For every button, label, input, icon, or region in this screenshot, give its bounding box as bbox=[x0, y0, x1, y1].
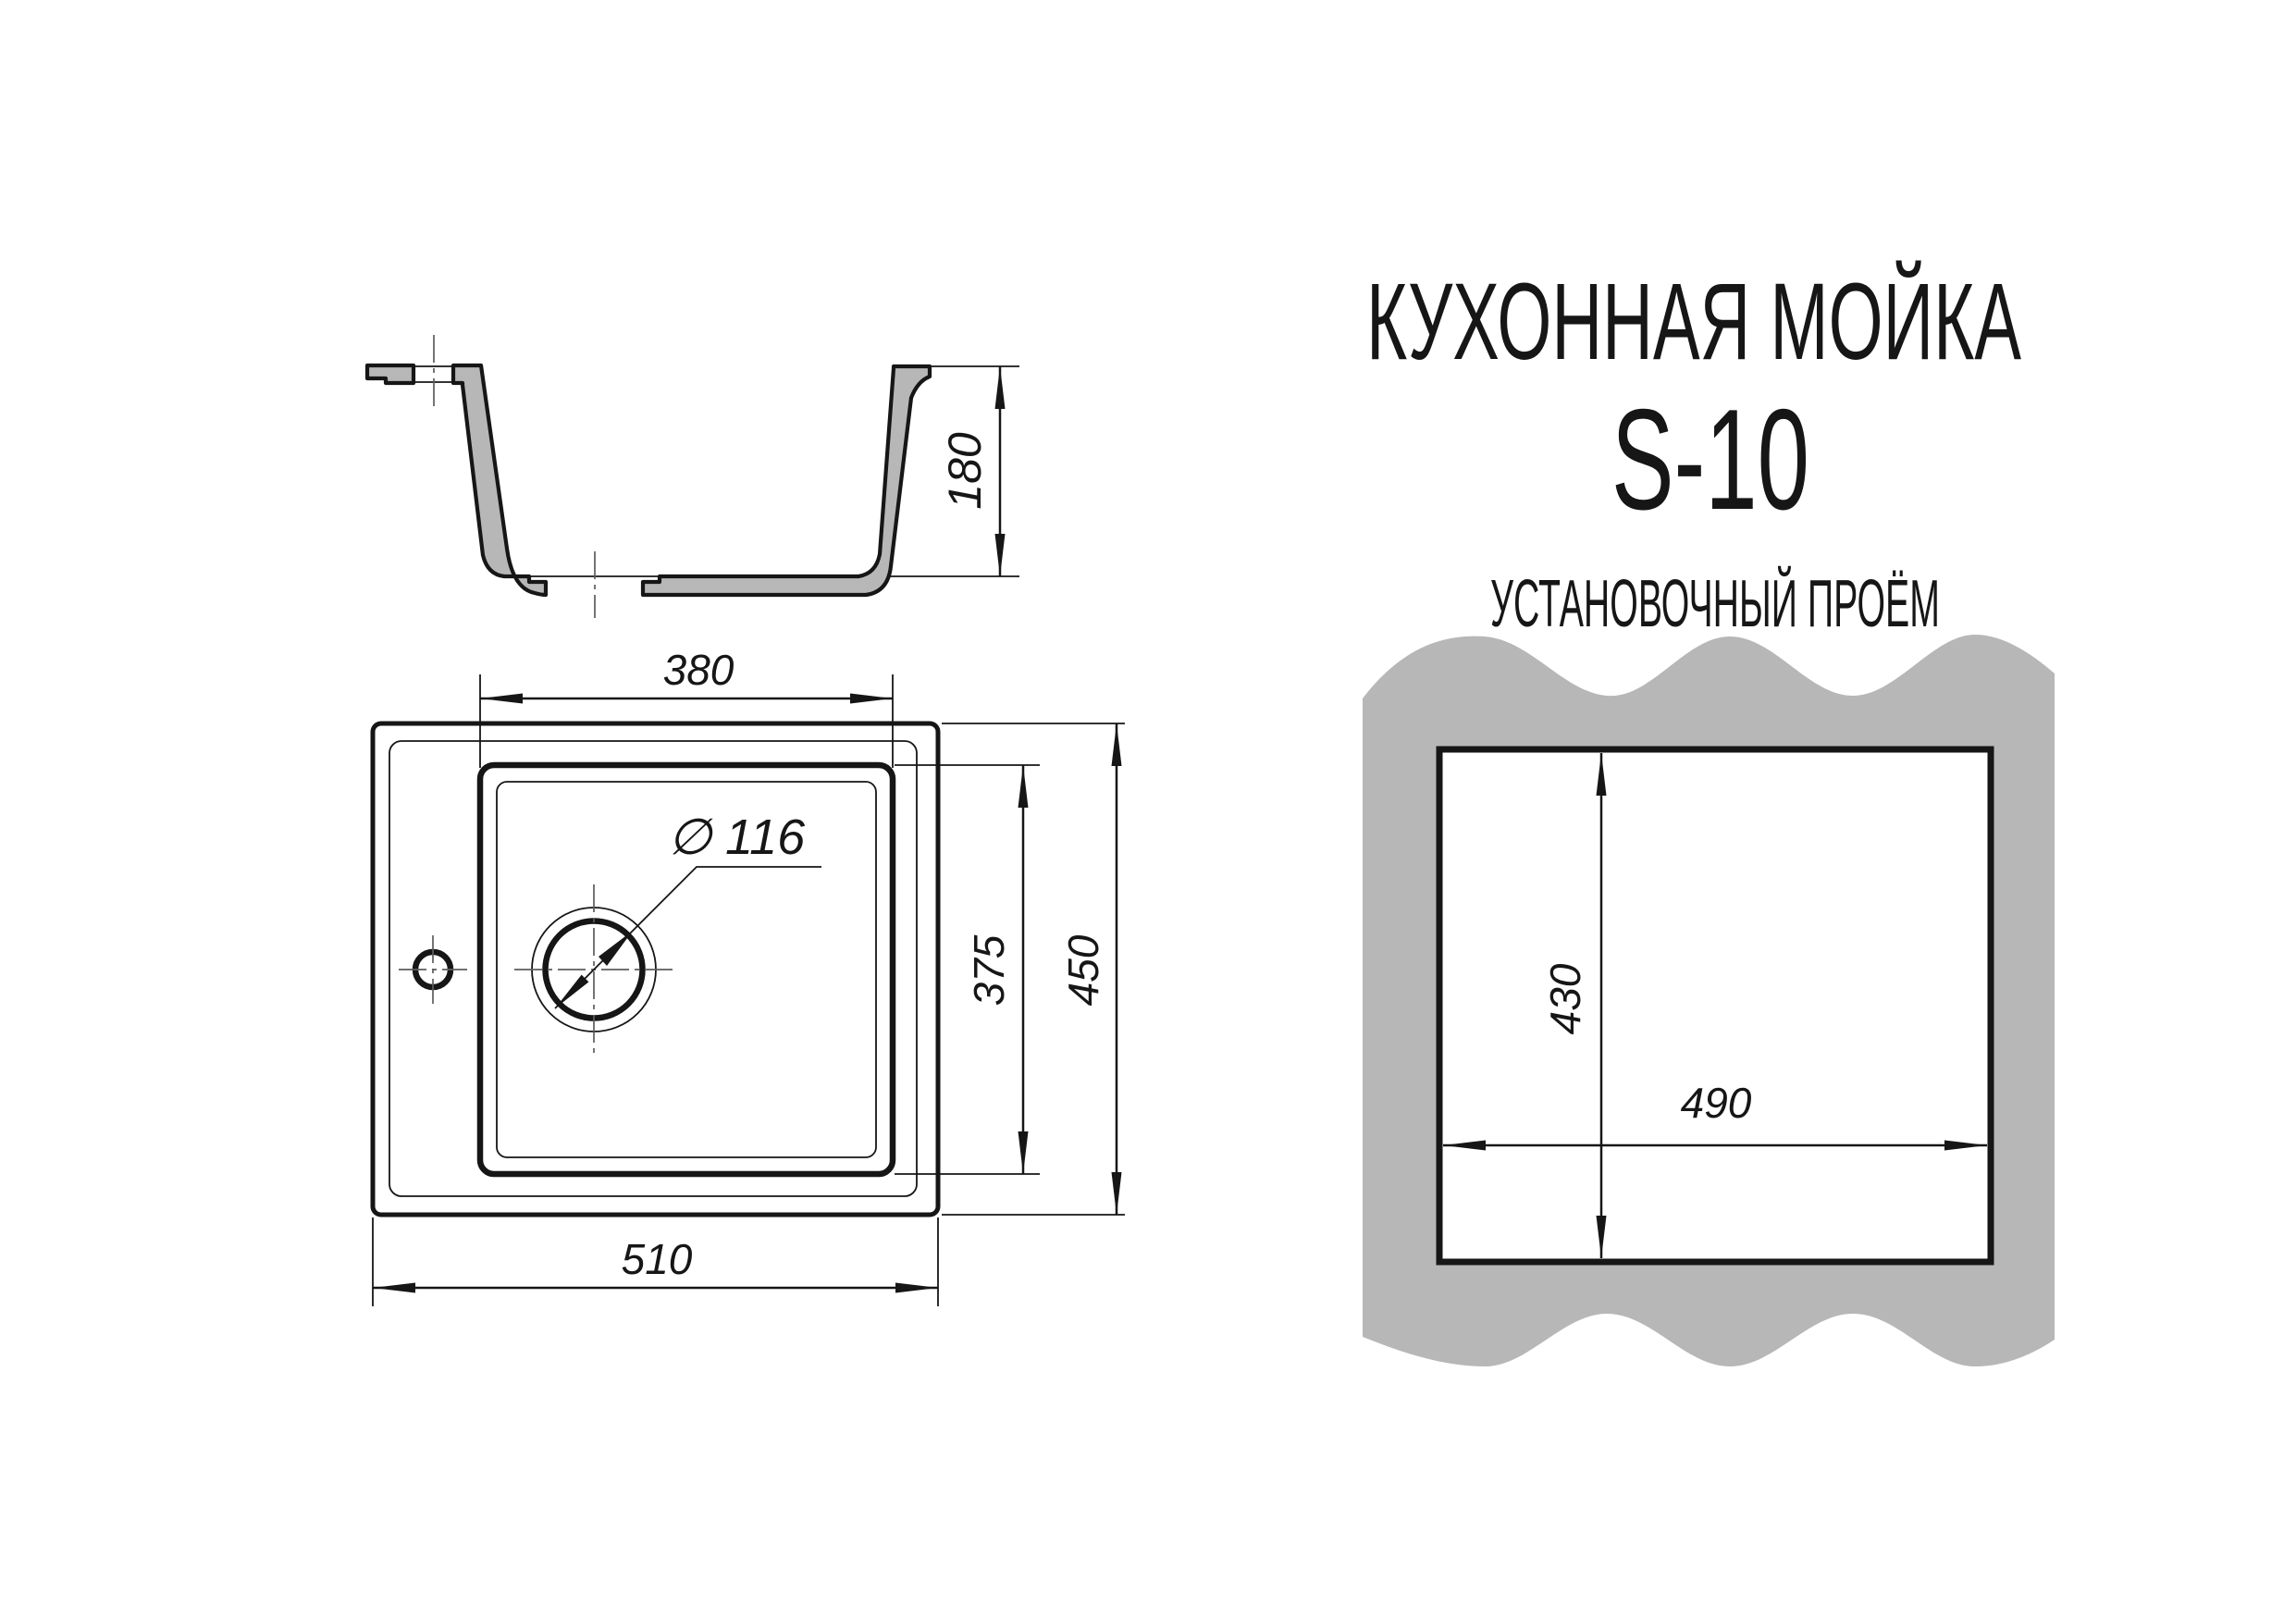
model-title: S-10 bbox=[1611, 379, 1809, 539]
drawing-canvas: 180 ∅ 116 380 bbox=[0, 0, 2296, 1619]
dim-drain-label: ∅ 116 bbox=[668, 809, 806, 865]
dim-510-label: 510 bbox=[622, 1235, 693, 1283]
dim-375-label: 375 bbox=[965, 934, 1013, 1006]
dim-430-label: 430 bbox=[1541, 963, 1589, 1034]
dim-380-label: 380 bbox=[663, 646, 734, 694]
cutout-view: УСТАНОВОЧНЫЙ ПРОЁМ 430 490 bbox=[1363, 565, 2055, 1366]
drawing-page: 180 ∅ 116 380 bbox=[0, 0, 2296, 1619]
dim-490-label: 490 bbox=[1681, 1079, 1752, 1127]
cutout-opening-rect bbox=[1439, 749, 1991, 1262]
page-title: КУХОННАЯ МОЙКА bbox=[1366, 259, 2021, 383]
cutout-heading: УСТАНОВОЧНЫЙ ПРОЁМ bbox=[1490, 565, 1940, 641]
dim-180-label: 180 bbox=[939, 432, 991, 510]
dim-450-label: 450 bbox=[1059, 934, 1107, 1006]
